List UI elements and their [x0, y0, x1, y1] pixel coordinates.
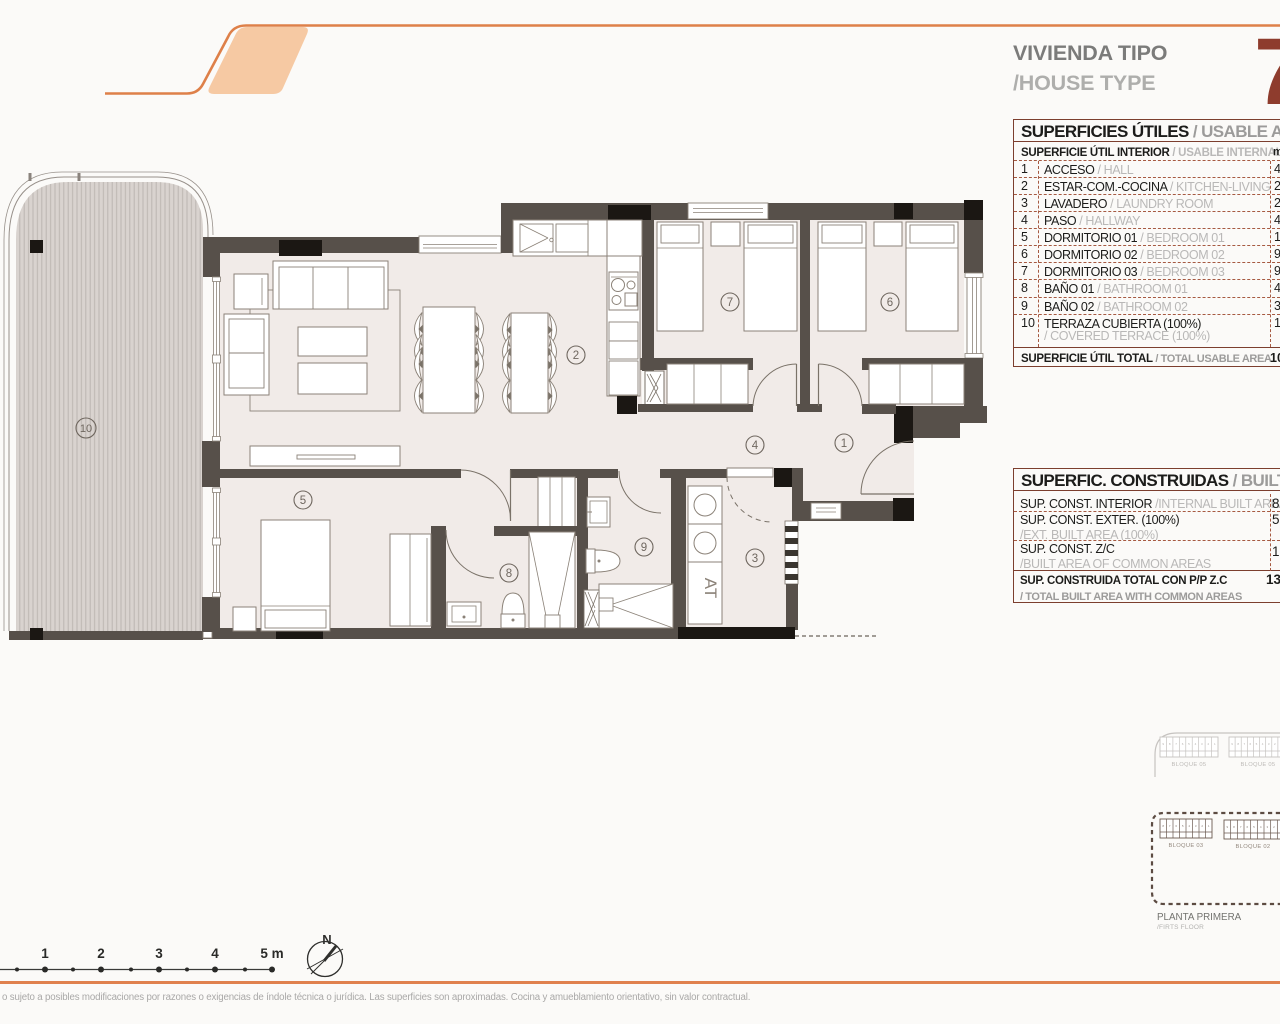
svg-text:4: 4	[211, 946, 219, 961]
svg-text:BLOQUE 02: BLOQUE 02	[1236, 844, 1271, 850]
svg-text:BLOQUE 05: BLOQUE 05	[1172, 762, 1207, 768]
svg-text:AT: AT	[701, 578, 720, 598]
svg-text:4: 4	[752, 440, 759, 452]
svg-text:PLANTA PRIMERA: PLANTA PRIMERA	[1157, 912, 1242, 923]
svg-text:5 m: 5 m	[260, 946, 283, 961]
svg-text:1: 1	[841, 438, 847, 450]
svg-text:3: 3	[752, 553, 758, 565]
svg-text:10: 10	[80, 423, 92, 435]
svg-text:8: 8	[506, 568, 512, 580]
svg-text:/FIRTS FLOOR: /FIRTS FLOOR	[1157, 924, 1204, 931]
svg-text:2: 2	[97, 946, 105, 961]
svg-text:3: 3	[155, 946, 163, 961]
svg-text:7: 7	[727, 297, 733, 309]
svg-text:BLOQUE 03: BLOQUE 03	[1169, 843, 1204, 849]
svg-text:9: 9	[641, 542, 647, 554]
svg-text:1: 1	[41, 946, 49, 961]
svg-text:2: 2	[573, 350, 579, 362]
svg-text:BLOQUE 05: BLOQUE 05	[1241, 762, 1276, 768]
svg-text:5: 5	[300, 495, 306, 507]
svg-text:6: 6	[887, 297, 893, 309]
svg-text:N: N	[322, 932, 331, 947]
